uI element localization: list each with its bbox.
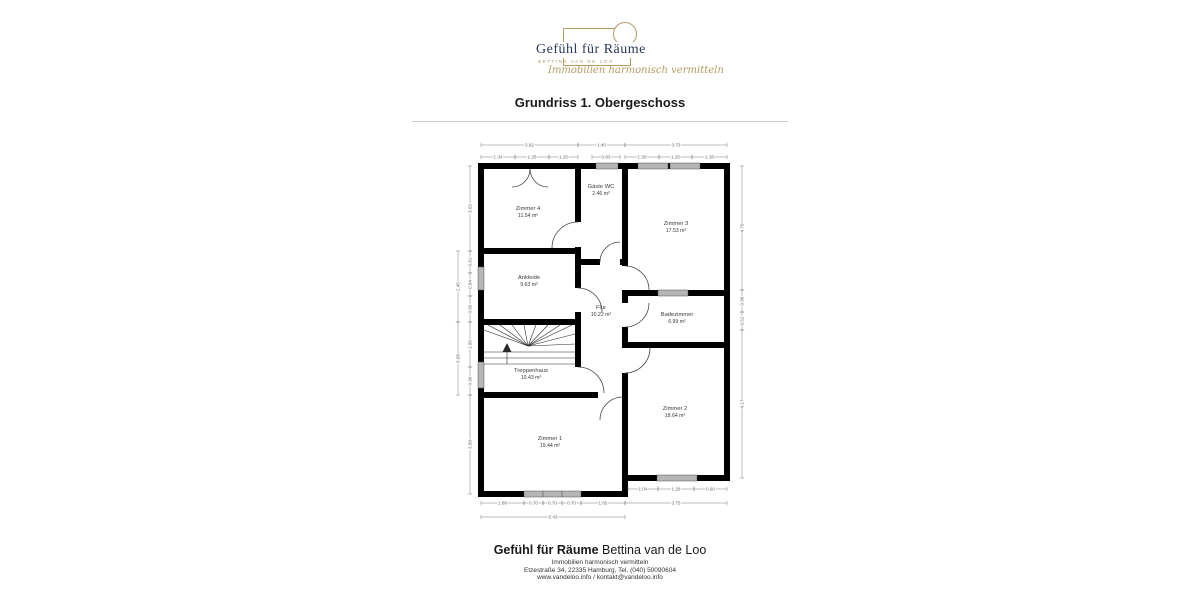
room-area-label: 11.54 m² (518, 213, 538, 219)
window (543, 491, 562, 497)
wall-segment (622, 373, 628, 491)
window (478, 362, 484, 388)
window (524, 491, 543, 497)
window (638, 163, 668, 169)
window (596, 163, 618, 169)
dimension-label: 1.95 (468, 340, 473, 349)
title-divider (412, 121, 788, 122)
door-arc (512, 169, 530, 187)
wall-segment (478, 248, 581, 254)
stair-line (528, 325, 560, 346)
logo-tagline-text: Immobilien harmonisch vermitteln (548, 65, 724, 76)
wall-segment (478, 392, 598, 398)
room-area-label: 6.99 m² (668, 319, 686, 325)
footer: Gefühl für Räume Bettina van de Loo Immo… (0, 543, 1200, 582)
dimension-label: 5.43 (549, 515, 558, 520)
wall-segment (622, 169, 628, 266)
dimension-label: 0.80 (468, 304, 473, 313)
room-name-label: Ankleide (518, 275, 540, 281)
stair-line (488, 325, 528, 346)
room-area-label: 9.63 m² (520, 282, 538, 288)
room-name-label: Zimmer 3 (664, 221, 688, 227)
footer-address: Etzestraße 34, 22335 Hamburg, Tel. (040)… (0, 567, 1200, 575)
dimension-label: 1.30 (638, 155, 647, 160)
dimension-label: 0.81 (468, 257, 473, 266)
door-arc (625, 266, 649, 290)
room-area-label: 10.22 m² (591, 312, 612, 318)
door-arc (552, 222, 578, 248)
door-arc (600, 397, 623, 420)
window (478, 267, 484, 290)
dimension-label: 0.90 (706, 487, 715, 492)
windows-group (478, 163, 700, 497)
room-area-label: 19.44 m² (540, 443, 561, 449)
wall-segment (620, 259, 628, 265)
logo-subbrand-text: BETTINA VAN DE LOO (538, 59, 614, 64)
footer-brand-line: Gefühl für Räume Bettina van de Loo (0, 543, 1200, 557)
room-area-label: 18.64 m² (665, 413, 686, 419)
dimension-label: 1.34 (494, 155, 503, 160)
stair-direction-arrow-icon (503, 343, 512, 352)
stair-line (528, 325, 548, 346)
dimension-label: 1.28 (672, 487, 681, 492)
dimension-label: 0.70 (548, 501, 557, 506)
room-name-label: Flur (596, 305, 606, 311)
window (657, 475, 697, 481)
wall-segment (622, 342, 730, 348)
dimension-label: 0.98 (740, 296, 745, 305)
stair-line (500, 325, 528, 346)
footer-web: www.vandeloo.info / kontakt@vandeloo.inf… (0, 574, 1200, 582)
door-arc (578, 367, 604, 393)
stair-line (524, 325, 528, 346)
door-arc (625, 348, 650, 373)
page-title: Grundriss 1. Obergeschoss (0, 95, 1200, 110)
dimensions-group: 3.821.403.731.341.251.250.831.301.251.38… (456, 143, 745, 520)
stairs-group (484, 325, 575, 364)
wall-segment (724, 163, 730, 481)
window (562, 491, 581, 497)
wall-segment (575, 169, 581, 222)
dimension-label: 3.75 (672, 501, 681, 506)
logo-brand-text: Gefühl für Räume (536, 42, 648, 58)
dimension-label: 1.40 (597, 143, 606, 148)
footer-contact-block: Immobilien harmonisch vermitteln Etzestr… (0, 559, 1200, 582)
dimension-label: 2.45 (456, 282, 461, 291)
dimension-label: 1.25 (559, 155, 568, 160)
dimension-label: 3.58 (468, 440, 473, 449)
room-area-label: 10.43 m² (521, 375, 542, 381)
room-area-label: 2.46 m² (592, 191, 610, 197)
wall-segment (575, 259, 600, 265)
company-logo: Gefühl für Räume BETTINA VAN DE LOO Immo… (536, 22, 676, 82)
room-area-label: 17.53 m² (666, 228, 687, 234)
door-arc (625, 303, 649, 327)
dimension-label: 0.70 (567, 501, 576, 506)
dimension-label: 1.68 (498, 501, 507, 506)
dimension-label: 4.17 (740, 399, 745, 408)
window (658, 290, 688, 296)
dimension-label: 0.70 (529, 501, 538, 506)
dimension-label: 0.83 (602, 155, 611, 160)
dimension-label: 3.73 (672, 143, 681, 148)
floorplan-svg: 3.821.403.731.341.251.250.831.301.251.38… (440, 125, 760, 540)
dimension-label: 0.84 (468, 280, 473, 289)
dimension-label: 0.52 (740, 316, 745, 325)
dimension-label: 3.02 (468, 204, 473, 213)
door-arc (530, 169, 548, 187)
dimension-label: 1.25 (528, 155, 537, 160)
window (670, 163, 700, 169)
floorplan: 3.821.403.731.341.251.250.831.301.251.38… (440, 125, 760, 540)
dimension-label: 1.38 (705, 155, 714, 160)
footer-tagline: Immobilien harmonisch vermitteln (0, 559, 1200, 567)
wall-segment (478, 319, 581, 325)
room-name-label: Badezimmer (661, 312, 694, 318)
dimension-label: 1.65 (599, 501, 608, 506)
room-name-label: Zimmer 4 (516, 206, 541, 212)
door-arc (600, 242, 620, 262)
dimension-label: 3.08 (456, 354, 461, 363)
room-name-label: Treppenhaus (514, 368, 548, 374)
wall-segment (478, 163, 484, 497)
stair-line (484, 330, 528, 346)
room-labels-group: Zimmer 411.54 m²Gäste WC2.46 m²Zimmer 31… (514, 184, 693, 449)
room-name-label: Zimmer 2 (663, 406, 687, 412)
dimension-label: 4.70 (740, 223, 745, 232)
dimension-label: 3.82 (525, 143, 534, 148)
dimension-label: 1.25 (671, 155, 680, 160)
room-name-label: Zimmer 1 (538, 436, 562, 442)
dimension-label: 0.90 (468, 376, 473, 385)
footer-brand-rest: Bettina van de Loo (599, 543, 707, 557)
dimension-label: 1.04 (639, 487, 648, 492)
room-name-label: Gäste WC (588, 184, 615, 190)
footer-brand-bold: Gefühl für Räume (494, 543, 599, 557)
